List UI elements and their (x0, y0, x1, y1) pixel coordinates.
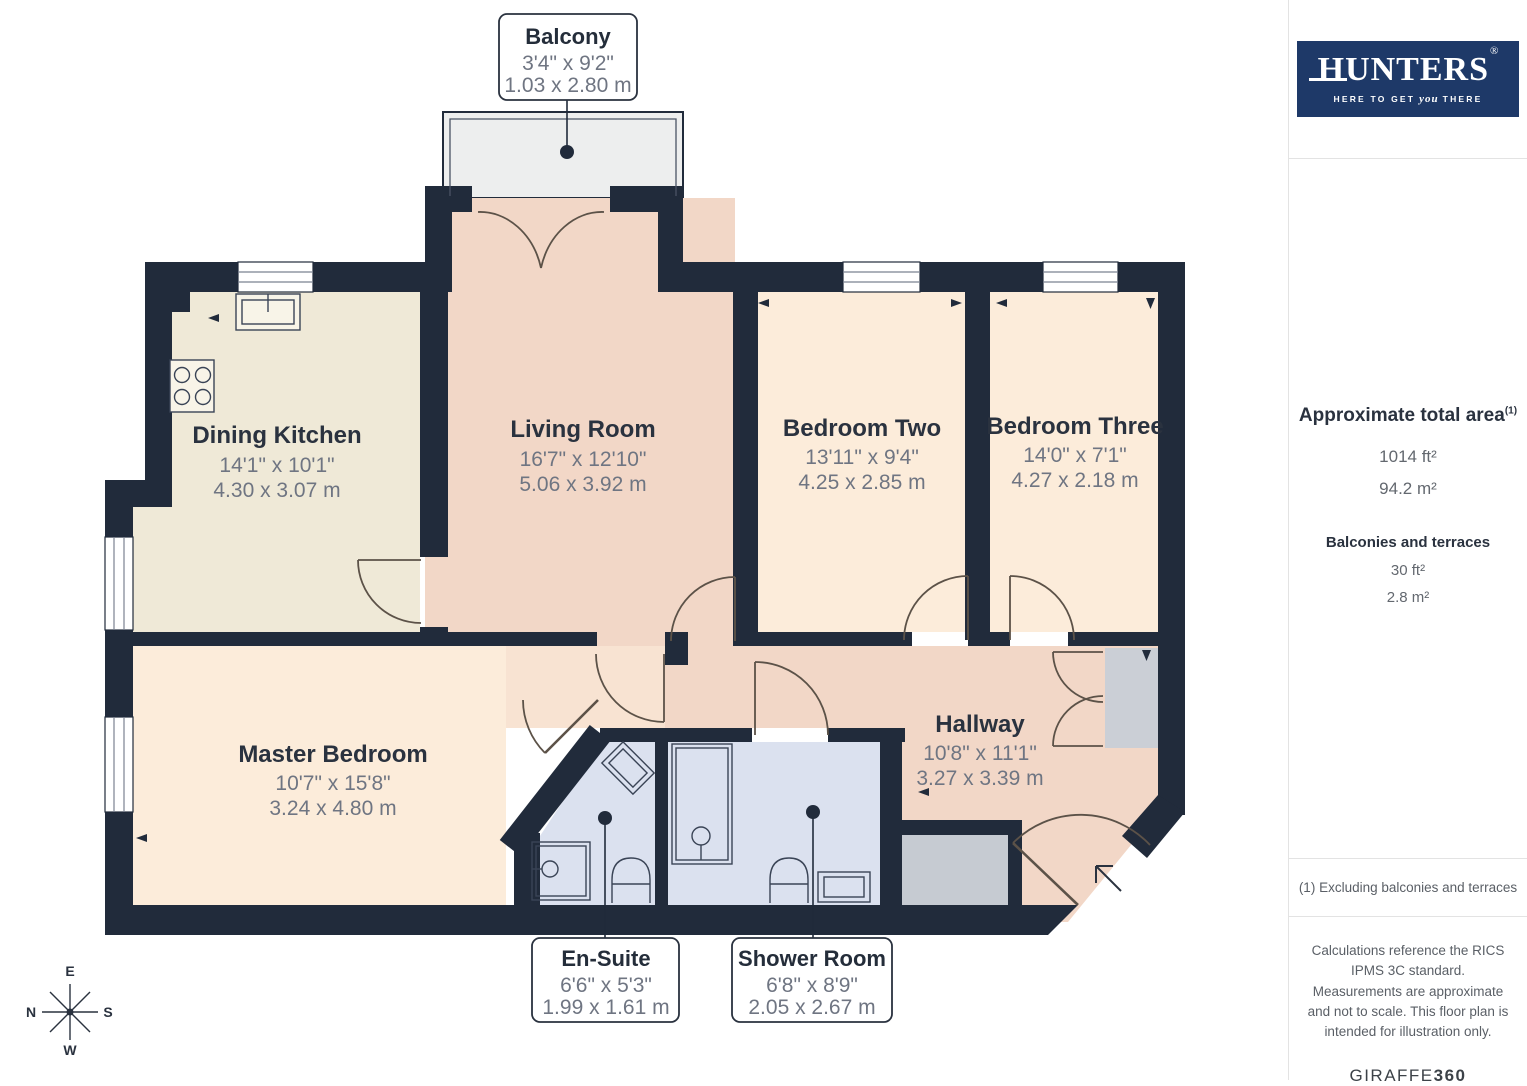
floor-plan-svg: Dining Kitchen 14'1" x 10'1" 4.30 x 3.07… (0, 0, 1288, 1080)
disclaimer-section: Calculations reference the RICS IPMS 3C … (1289, 916, 1527, 1080)
label-hallway: Hallway 10'8" x 11'1" 3.27 x 3.39 m (916, 711, 1043, 790)
logo-section: HUNTERS® HERE TO GET you THERE (1289, 0, 1527, 158)
master-bedroom-name: Master Bedroom (238, 741, 427, 768)
kitchen-sink-icon (236, 294, 300, 330)
master-bedroom-metric: 3.24 x 4.80 m (269, 797, 396, 820)
bedroom-three-window (1043, 262, 1118, 292)
total-area-ft: 1014 ft² (1379, 441, 1437, 473)
hallway-imperial: 10'8" x 11'1" (923, 742, 1037, 765)
compass-icon: E S W N (26, 963, 113, 1058)
balconies-title: Balconies and terraces (1326, 534, 1490, 551)
en-suite-name: En-Suite (561, 946, 650, 971)
area-summary-section: Approximate total area(1) 1014 ft² 94.2 … (1289, 158, 1527, 858)
balcony-area-ft: 30 ft² (1391, 557, 1425, 585)
label-living-room: Living Room 16'7" x 12'10" 5.06 x 3.92 m (510, 416, 655, 496)
shower-room-name: Shower Room (738, 946, 886, 971)
page: { "branding": { "logo_text": "HUNTERS", … (0, 0, 1527, 1080)
storage-floor (902, 835, 1008, 905)
bedroom-two-imperial: 13'11" x 9'4" (805, 446, 919, 469)
registered-mark: ® (1490, 45, 1499, 57)
disclaimer-text: Calculations reference the RICS IPMS 3C … (1306, 941, 1511, 1042)
en-suite-imperial: 6'6" x 5'3" (560, 974, 652, 997)
living-room-imperial: 16'7" x 12'10" (520, 448, 647, 471)
en-suite-label-box: En-Suite 6'6" x 5'3" 1.99 x 1.61 m (532, 938, 679, 1022)
bedroom-three-metric: 4.27 x 2.18 m (1011, 469, 1138, 492)
sidebar: HUNTERS® HERE TO GET you THERE Approxima… (1288, 0, 1527, 1080)
master-side-window (105, 717, 133, 812)
total-area-title: Approximate total area(1) (1299, 405, 1517, 427)
compass-top-letter: E (65, 963, 74, 979)
balcony-area-m: 2.8 m² (1387, 584, 1430, 612)
balcony-name: Balcony (525, 24, 611, 49)
en-suite-floor (540, 742, 655, 905)
shower-room-imperial: 6'8" x 8'9" (766, 974, 858, 997)
compass-right-letter: S (103, 1004, 112, 1020)
living-room-name: Living Room (510, 416, 655, 443)
logo-tagline: HERE TO GET you THERE (1334, 93, 1483, 105)
dining-kitchen-imperial: 14'1" x 10'1" (219, 454, 334, 477)
hall-closet-floor (1105, 648, 1160, 748)
stove-icon (170, 360, 214, 412)
bedroom-two-name: Bedroom Two (783, 415, 941, 442)
master-bedroom-imperial: 10'7" x 15'8" (275, 772, 390, 795)
kitchen-window (238, 262, 313, 292)
balcony-metric: 1.03 x 2.80 m (504, 74, 631, 97)
footnote: (1) Excluding balconies and terraces (1289, 858, 1527, 916)
kitchen-side-window (105, 537, 133, 630)
compass-bottom-letter: W (63, 1042, 77, 1058)
shower-room-metric: 2.05 x 2.67 m (748, 996, 875, 1019)
hallway-name: Hallway (935, 711, 1025, 738)
dining-kitchen-metric: 4.30 x 3.07 m (213, 479, 340, 502)
balcony-label-box: Balcony 3'4" x 9'2" 1.03 x 2.80 m (499, 14, 637, 100)
living-room-metric: 5.06 x 3.92 m (519, 473, 646, 496)
dining-kitchen-name: Dining Kitchen (192, 422, 361, 449)
vestibule-floor (506, 646, 665, 728)
bedroom-two-metric: 4.25 x 2.85 m (798, 471, 925, 494)
label-bedroom-two: Bedroom Two 13'11" x 9'4" 4.25 x 2.85 m (783, 415, 941, 494)
bedroom-two-window (843, 262, 920, 292)
bedroom-three-name: Bedroom Three (986, 413, 1163, 440)
compass-left-letter: N (26, 1004, 36, 1020)
shower-room-floor (668, 742, 880, 905)
total-area-m: 94.2 m² (1379, 473, 1437, 505)
balcony-imperial: 3'4" x 9'2" (522, 52, 614, 75)
shower-room-label-box: Shower Room 6'8" x 8'9" 2.05 x 2.67 m (732, 938, 892, 1022)
floor-plan: Dining Kitchen 14'1" x 10'1" 4.30 x 3.07… (0, 0, 1288, 1080)
bedroom-three-imperial: 14'0" x 7'1" (1023, 444, 1127, 467)
hunters-logo: HUNTERS® HERE TO GET you THERE (1297, 41, 1519, 117)
en-suite-metric: 1.99 x 1.61 m (542, 996, 669, 1019)
hallway-metric: 3.27 x 3.39 m (916, 767, 1043, 790)
giraffe360-credit: GIRAFFE360 (1289, 1066, 1527, 1086)
logo-text: HUNTERS (1318, 51, 1489, 88)
logo-wordmark: HUNTERS® (1318, 53, 1499, 87)
